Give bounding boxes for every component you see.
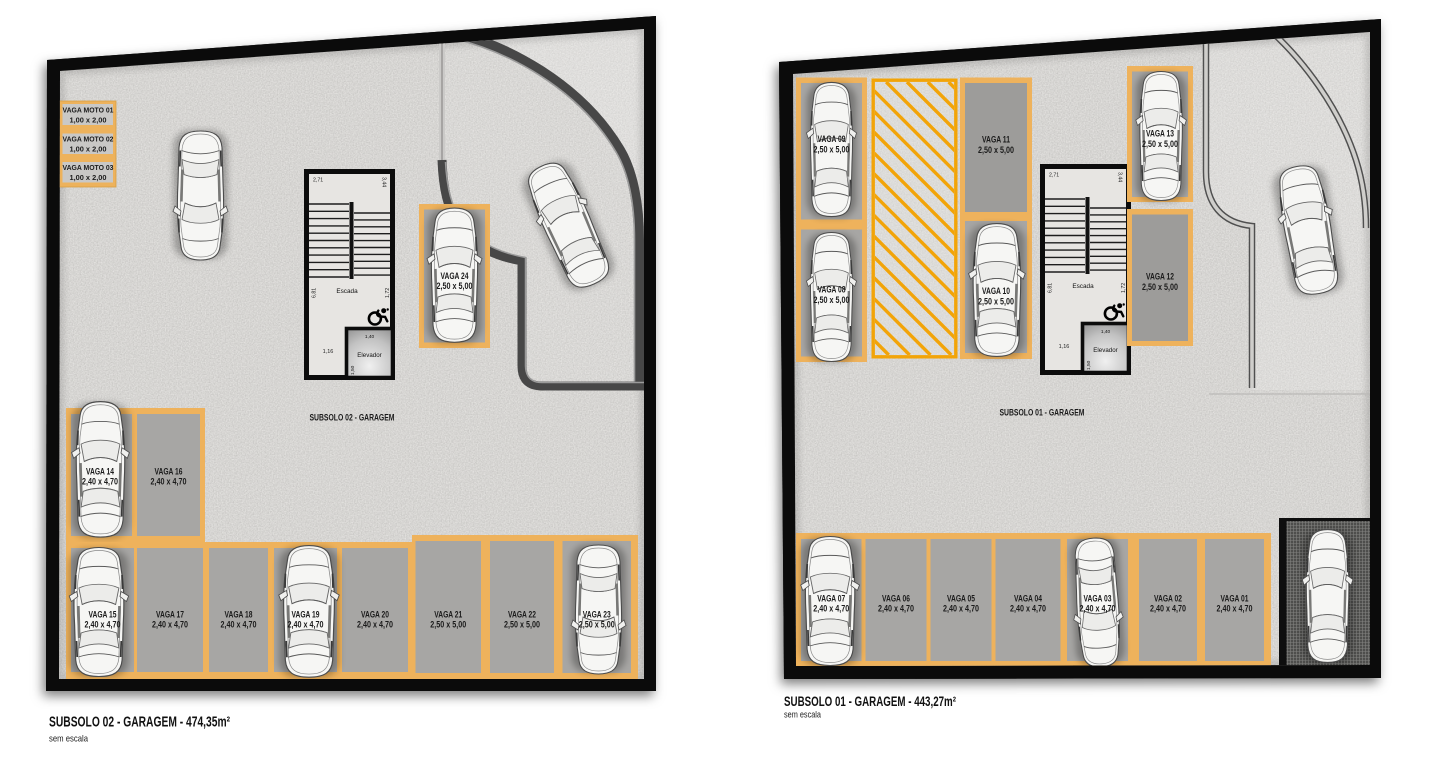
svg-text:VAGA 18: VAGA 18 xyxy=(225,609,253,619)
svg-text:2,50 x 5,00: 2,50 x 5,00 xyxy=(814,145,850,155)
svg-text:VAGA 14: VAGA 14 xyxy=(86,466,114,476)
svg-text:SUBSOLO 02 - GARAGEM: SUBSOLO 02 - GARAGEM xyxy=(310,413,395,423)
svg-text:2,40 x 4,70: 2,40 x 4,70 xyxy=(1217,604,1253,614)
svg-text:2,50 x 5,00: 2,50 x 5,00 xyxy=(1142,139,1178,149)
svg-text:2,50 x 5,00: 2,50 x 5,00 xyxy=(1142,282,1178,292)
svg-text:VAGA 10: VAGA 10 xyxy=(982,286,1010,296)
svg-text:VAGA 20: VAGA 20 xyxy=(361,609,389,619)
svg-text:2,40 x 4,70: 2,40 x 4,70 xyxy=(1150,604,1186,614)
svg-text:2,40 x 4,70: 2,40 x 4,70 xyxy=(85,620,121,630)
svg-text:2,40 x 4,70: 2,40 x 4,70 xyxy=(152,620,188,630)
svg-text:VAGA 05: VAGA 05 xyxy=(947,593,975,603)
svg-text:VAGA 13: VAGA 13 xyxy=(1146,129,1174,139)
svg-text:VAGA 12: VAGA 12 xyxy=(1146,272,1174,282)
svg-text:sem escala: sem escala xyxy=(784,710,821,720)
svg-text:VAGA 03: VAGA 03 xyxy=(1084,593,1112,603)
svg-text:2,40 x 4,70: 2,40 x 4,70 xyxy=(943,604,979,614)
svg-text:VAGA 01: VAGA 01 xyxy=(1221,593,1249,603)
svg-text:SUBSOLO 02 - GARAGEM - 474,35m: SUBSOLO 02 - GARAGEM - 474,35m² xyxy=(49,715,230,731)
svg-text:2,40 x 4,70: 2,40 x 4,70 xyxy=(1010,604,1046,614)
svg-text:VAGA 24: VAGA 24 xyxy=(441,271,469,281)
svg-text:2,40 x 4,70: 2,40 x 4,70 xyxy=(357,620,393,630)
svg-text:VAGA 23: VAGA 23 xyxy=(583,609,611,619)
svg-text:2,50 x 5,00: 2,50 x 5,00 xyxy=(978,145,1014,155)
svg-text:VAGA 04: VAGA 04 xyxy=(1014,593,1042,603)
svg-text:VAGA 02: VAGA 02 xyxy=(1154,593,1182,603)
svg-text:2,50 x 5,00: 2,50 x 5,00 xyxy=(978,297,1014,307)
svg-text:2,50 x 5,00: 2,50 x 5,00 xyxy=(437,281,473,291)
svg-text:VAGA 16: VAGA 16 xyxy=(155,466,183,476)
svg-text:2,40 x 4,70: 2,40 x 4,70 xyxy=(151,477,187,487)
svg-text:VAGA 15: VAGA 15 xyxy=(89,609,117,619)
svg-text:2,50 x 5,00: 2,50 x 5,00 xyxy=(504,620,540,630)
svg-text:VAGA 19: VAGA 19 xyxy=(292,609,320,619)
svg-text:1,00 x 2,00: 1,00 x 2,00 xyxy=(70,173,107,182)
svg-text:sem escala: sem escala xyxy=(49,734,89,745)
svg-text:SUBSOLO 01 - GARAGEM - 443,27m: SUBSOLO 01 - GARAGEM - 443,27m² xyxy=(784,694,956,709)
svg-text:SUBSOLO 01 - GARAGEM: SUBSOLO 01 - GARAGEM xyxy=(1000,408,1085,418)
svg-text:VAGA 21: VAGA 21 xyxy=(434,609,462,619)
svg-text:2,40 x 4,70: 2,40 x 4,70 xyxy=(813,604,849,614)
svg-text:2,40 x 4,70: 2,40 x 4,70 xyxy=(221,620,257,630)
svg-text:VAGA 06: VAGA 06 xyxy=(882,593,910,603)
svg-text:1,00 x 2,00: 1,00 x 2,00 xyxy=(70,144,107,153)
svg-text:2,40 x 4,70: 2,40 x 4,70 xyxy=(288,620,324,630)
svg-text:VAGA 11: VAGA 11 xyxy=(982,135,1010,145)
svg-text:2,50 x 5,00: 2,50 x 5,00 xyxy=(814,295,850,305)
svg-text:VAGA 22: VAGA 22 xyxy=(508,609,536,619)
svg-text:VAGA 09: VAGA 09 xyxy=(818,134,846,144)
svg-text:VAGA MOTO 02: VAGA MOTO 02 xyxy=(63,134,114,143)
svg-text:2,40 x 4,70: 2,40 x 4,70 xyxy=(878,604,914,614)
svg-text:2,40 x 4,70: 2,40 x 4,70 xyxy=(1080,604,1116,614)
svg-text:2,40 x 4,70: 2,40 x 4,70 xyxy=(82,477,118,487)
svg-text:2,50 x 5,00: 2,50 x 5,00 xyxy=(430,620,466,630)
svg-text:1,00 x 2,00: 1,00 x 2,00 xyxy=(70,115,107,124)
svg-text:VAGA 08: VAGA 08 xyxy=(818,285,846,295)
svg-text:VAGA 07: VAGA 07 xyxy=(817,593,845,603)
svg-text:VAGA 17: VAGA 17 xyxy=(156,609,184,619)
svg-text:VAGA MOTO 03: VAGA MOTO 03 xyxy=(63,163,114,172)
svg-text:VAGA MOTO 01: VAGA MOTO 01 xyxy=(63,105,114,114)
svg-text:2,50 x 5,00: 2,50 x 5,00 xyxy=(579,620,615,630)
